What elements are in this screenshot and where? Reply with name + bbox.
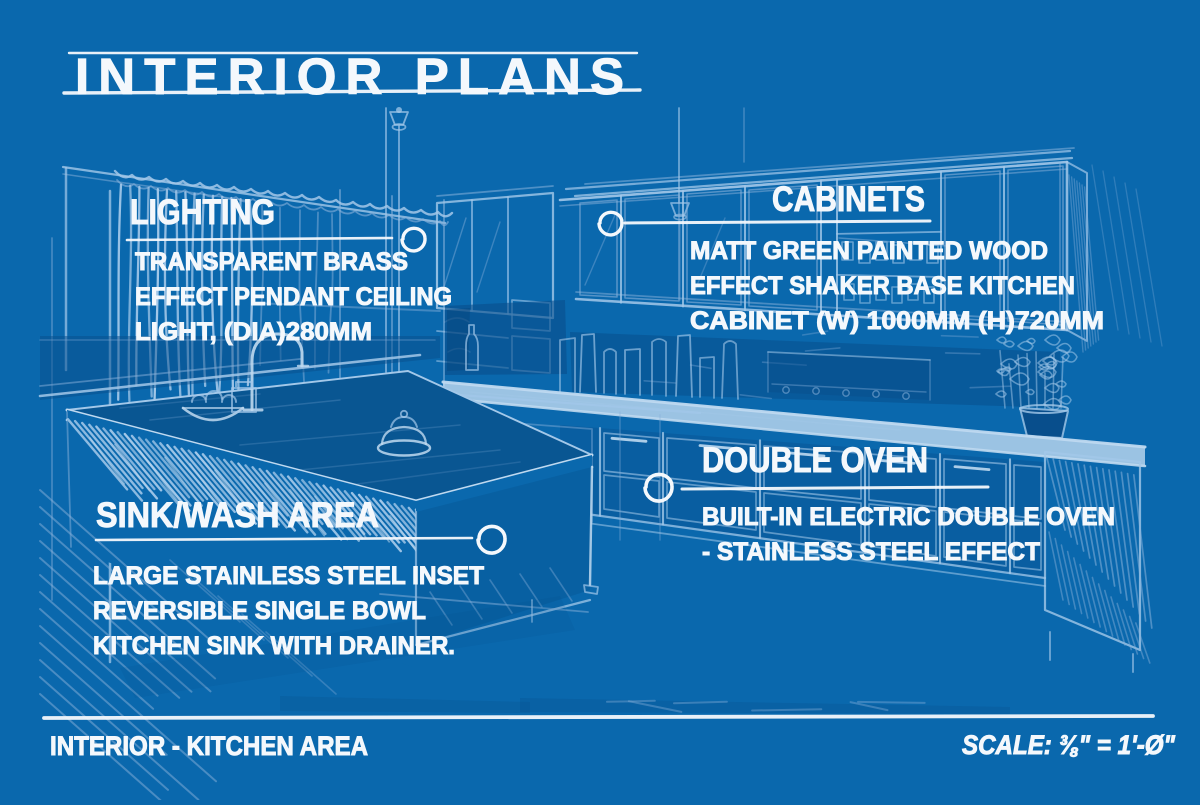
svg-text:KITCHEN SINK WITH DRAINER.: KITCHEN SINK WITH DRAINER. <box>93 632 455 660</box>
svg-text:INTERIOR - KITCHEN AREA: INTERIOR - KITCHEN AREA <box>50 731 368 761</box>
svg-text:SINK/WASH AREA: SINK/WASH AREA <box>96 496 379 535</box>
svg-text:TRANSPARENT BRASS: TRANSPARENT BRASS <box>135 248 408 276</box>
svg-text:BUILT-IN ELECTRIC DOUBLE OVEN: BUILT-IN ELECTRIC DOUBLE OVEN <box>702 503 1115 531</box>
svg-text:EFFECT SHAKER BASE KITCHEN: EFFECT SHAKER BASE KITCHEN <box>690 272 1075 300</box>
svg-text:REVERSIBLE SINGLE BOWL: REVERSIBLE SINGLE BOWL <box>93 597 426 625</box>
svg-text:MATT GREEN PAINTED WOOD: MATT GREEN PAINTED WOOD <box>690 237 1048 265</box>
svg-text:EFFECT PENDANT CEILING: EFFECT PENDANT CEILING <box>135 283 452 311</box>
svg-text:LIGHTING: LIGHTING <box>130 193 275 232</box>
svg-text:DOUBLE OVEN: DOUBLE OVEN <box>702 441 928 480</box>
svg-text:LARGE STAINLESS STEEL INSET: LARGE STAINLESS STEEL INSET <box>93 562 484 590</box>
svg-text:- STAINLESS STEEL EFFECT: - STAINLESS STEEL EFFECT <box>702 538 1040 566</box>
svg-text:CABINET (W) 1000MM (H)720MM: CABINET (W) 1000MM (H)720MM <box>690 307 1104 335</box>
svg-text:CABINETS: CABINETS <box>772 180 925 219</box>
svg-text:LIGHT, (DIA)280MM: LIGHT, (DIA)280MM <box>135 318 372 346</box>
svg-text:SCALE: ⅜" = 1'-Ø": SCALE: ⅜" = 1'-Ø" <box>962 730 1176 760</box>
